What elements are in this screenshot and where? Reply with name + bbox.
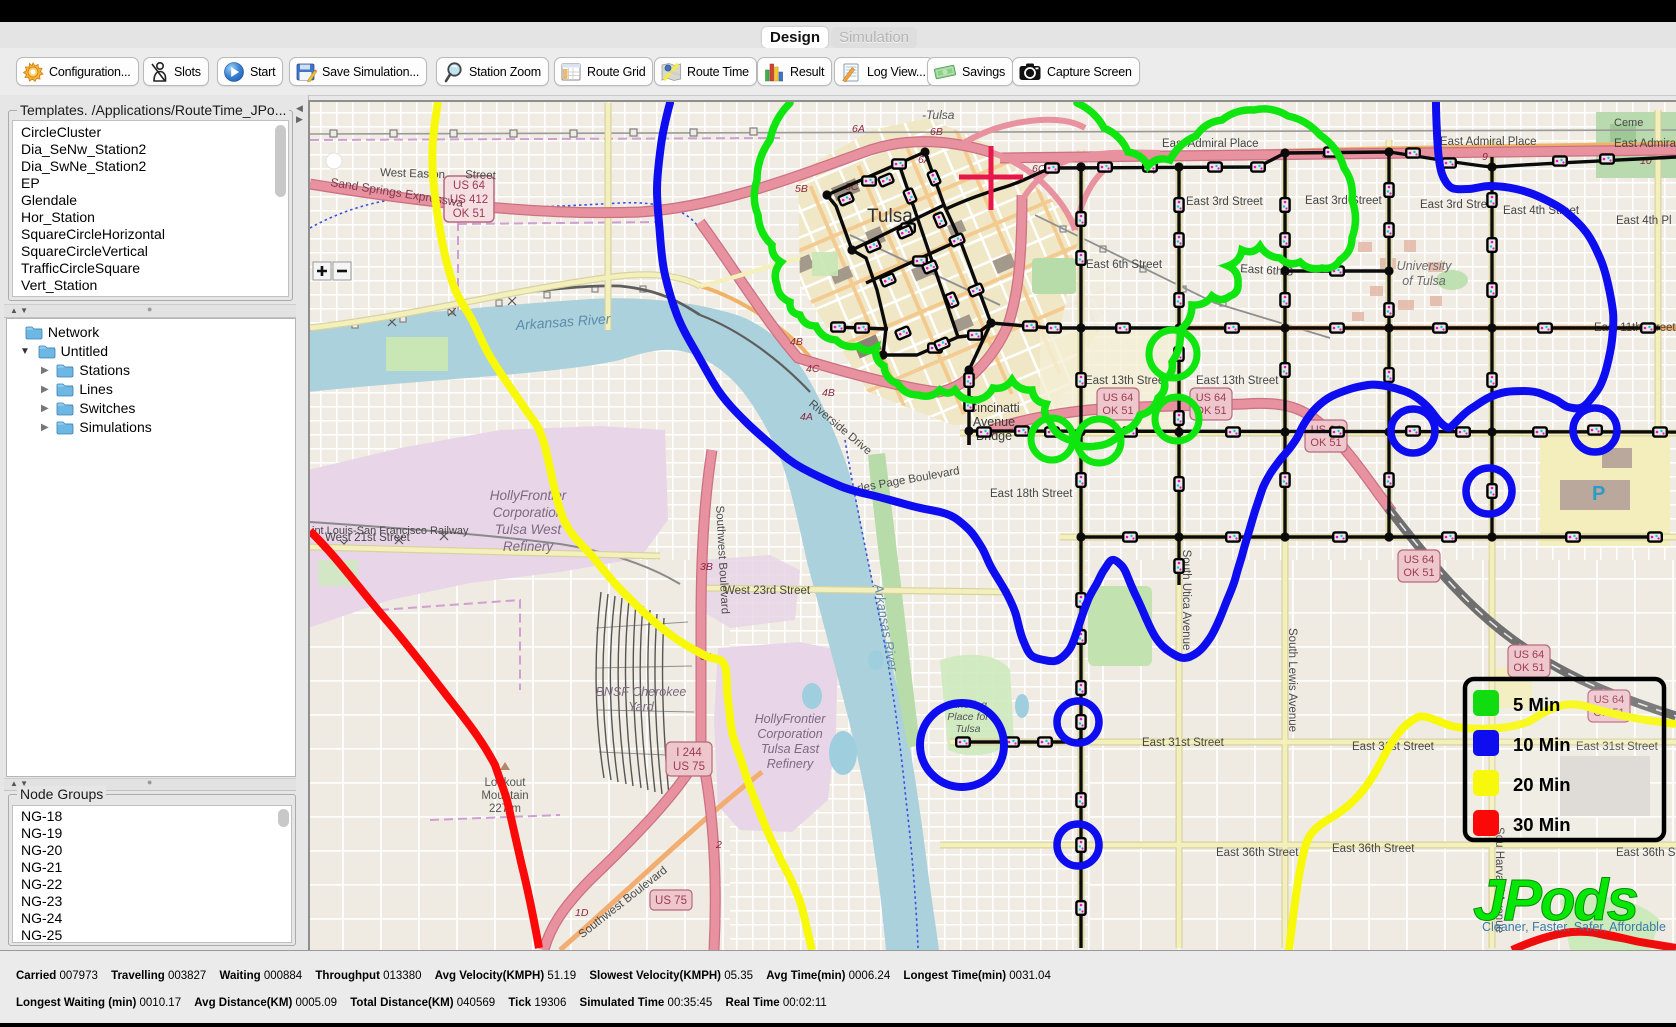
svg-text:Tulsa: Tulsa xyxy=(956,723,981,735)
svg-text:30 Min: 30 Min xyxy=(1513,814,1571,835)
svg-text:Street: Street xyxy=(465,169,497,182)
svg-text:East 13th Street: East 13th Street xyxy=(1085,375,1168,387)
svg-text:4B: 4B xyxy=(790,336,803,348)
svg-text:US 64: US 64 xyxy=(1196,392,1227,404)
svg-text:East 13th Street: East 13th Street xyxy=(1196,375,1279,387)
svg-text:9: 9 xyxy=(1482,151,1488,163)
svg-text:5 Min: 5 Min xyxy=(1513,694,1560,715)
svg-text:Corporation: Corporation xyxy=(757,727,822,741)
svg-text:Corporation: Corporation xyxy=(493,505,564,520)
svg-text:2: 2 xyxy=(715,839,722,851)
svg-text:4A: 4A xyxy=(800,411,813,423)
svg-text:East 3rd Street: East 3rd Street xyxy=(1420,199,1498,211)
svg-text:Refinery: Refinery xyxy=(767,757,814,771)
svg-text:Tulsa West: Tulsa West xyxy=(495,522,563,537)
svg-text:US 75: US 75 xyxy=(655,895,687,907)
svg-text:East 18th Street: East 18th Street xyxy=(990,488,1073,500)
svg-text:East 3rd Street: East 3rd Street xyxy=(1186,196,1264,208)
svg-text:20 Min: 20 Min xyxy=(1513,774,1571,795)
svg-text:West 23rd Street: West 23rd Street xyxy=(724,585,811,597)
svg-text:OK 51: OK 51 xyxy=(1403,567,1434,579)
svg-text:int Louis-San Francisco Railwa: int Louis-San Francisco Railway xyxy=(312,525,469,537)
svg-text:1D: 1D xyxy=(575,907,589,919)
svg-text:East 6th Street: East 6th Street xyxy=(1086,259,1163,271)
svg-text:Refinery: Refinery xyxy=(503,539,555,554)
svg-text:Yard: Yard xyxy=(628,700,655,714)
svg-text:South Lewis Avenue: South Lewis Avenue xyxy=(1286,628,1298,732)
svg-text:OK 51: OK 51 xyxy=(1102,405,1133,417)
svg-text:OK 51: OK 51 xyxy=(453,208,486,220)
svg-text:East 4th Pl: East 4th Pl xyxy=(1616,215,1672,227)
svg-text:HollyFrontier: HollyFrontier xyxy=(755,712,827,726)
svg-text:OK 51: OK 51 xyxy=(1513,662,1544,674)
svg-text:Tulsa East: Tulsa East xyxy=(761,742,820,756)
svg-text:US 64: US 64 xyxy=(1514,649,1545,661)
svg-text:BNSF Cherokee: BNSF Cherokee xyxy=(596,685,687,699)
svg-text:Ceme: Ceme xyxy=(1614,117,1643,129)
svg-text:4C: 4C xyxy=(806,363,820,375)
svg-text:East 36th Street: East 36th Street xyxy=(1332,843,1415,855)
svg-text:US 64: US 64 xyxy=(1404,554,1435,566)
svg-text:University: University xyxy=(1397,259,1453,273)
svg-text:US 75: US 75 xyxy=(673,761,705,773)
svg-text:4B: 4B xyxy=(822,387,835,399)
svg-text:of Tulsa: of Tulsa xyxy=(1402,274,1446,288)
svg-text:US 64: US 64 xyxy=(1103,392,1134,404)
svg-text:East Admiral Pl: East Admiral Pl xyxy=(1614,138,1676,150)
svg-text:East Admiral Place: East Admiral Place xyxy=(1440,136,1537,148)
svg-text:East 36th Street: East 36th Street xyxy=(1216,847,1299,859)
svg-text:US 64: US 64 xyxy=(453,180,486,192)
svg-text:East 3rd Street: East 3rd Street xyxy=(1305,195,1383,207)
svg-text:East 31st Street: East 31st Street xyxy=(1142,737,1225,749)
svg-text:5B: 5B xyxy=(795,183,808,195)
svg-text:6A: 6A xyxy=(852,123,865,135)
svg-text:6B: 6B xyxy=(930,126,943,138)
svg-text:-Tulsa: -Tulsa xyxy=(922,108,955,122)
svg-text:OK 51: OK 51 xyxy=(1310,437,1341,449)
svg-text:10 Min: 10 Min xyxy=(1513,734,1571,755)
svg-text:East 36th Str: East 36th Str xyxy=(1616,847,1676,859)
svg-text:P: P xyxy=(1592,483,1605,505)
svg-text:I 244: I 244 xyxy=(676,747,702,759)
svg-text:3B: 3B xyxy=(700,561,713,573)
